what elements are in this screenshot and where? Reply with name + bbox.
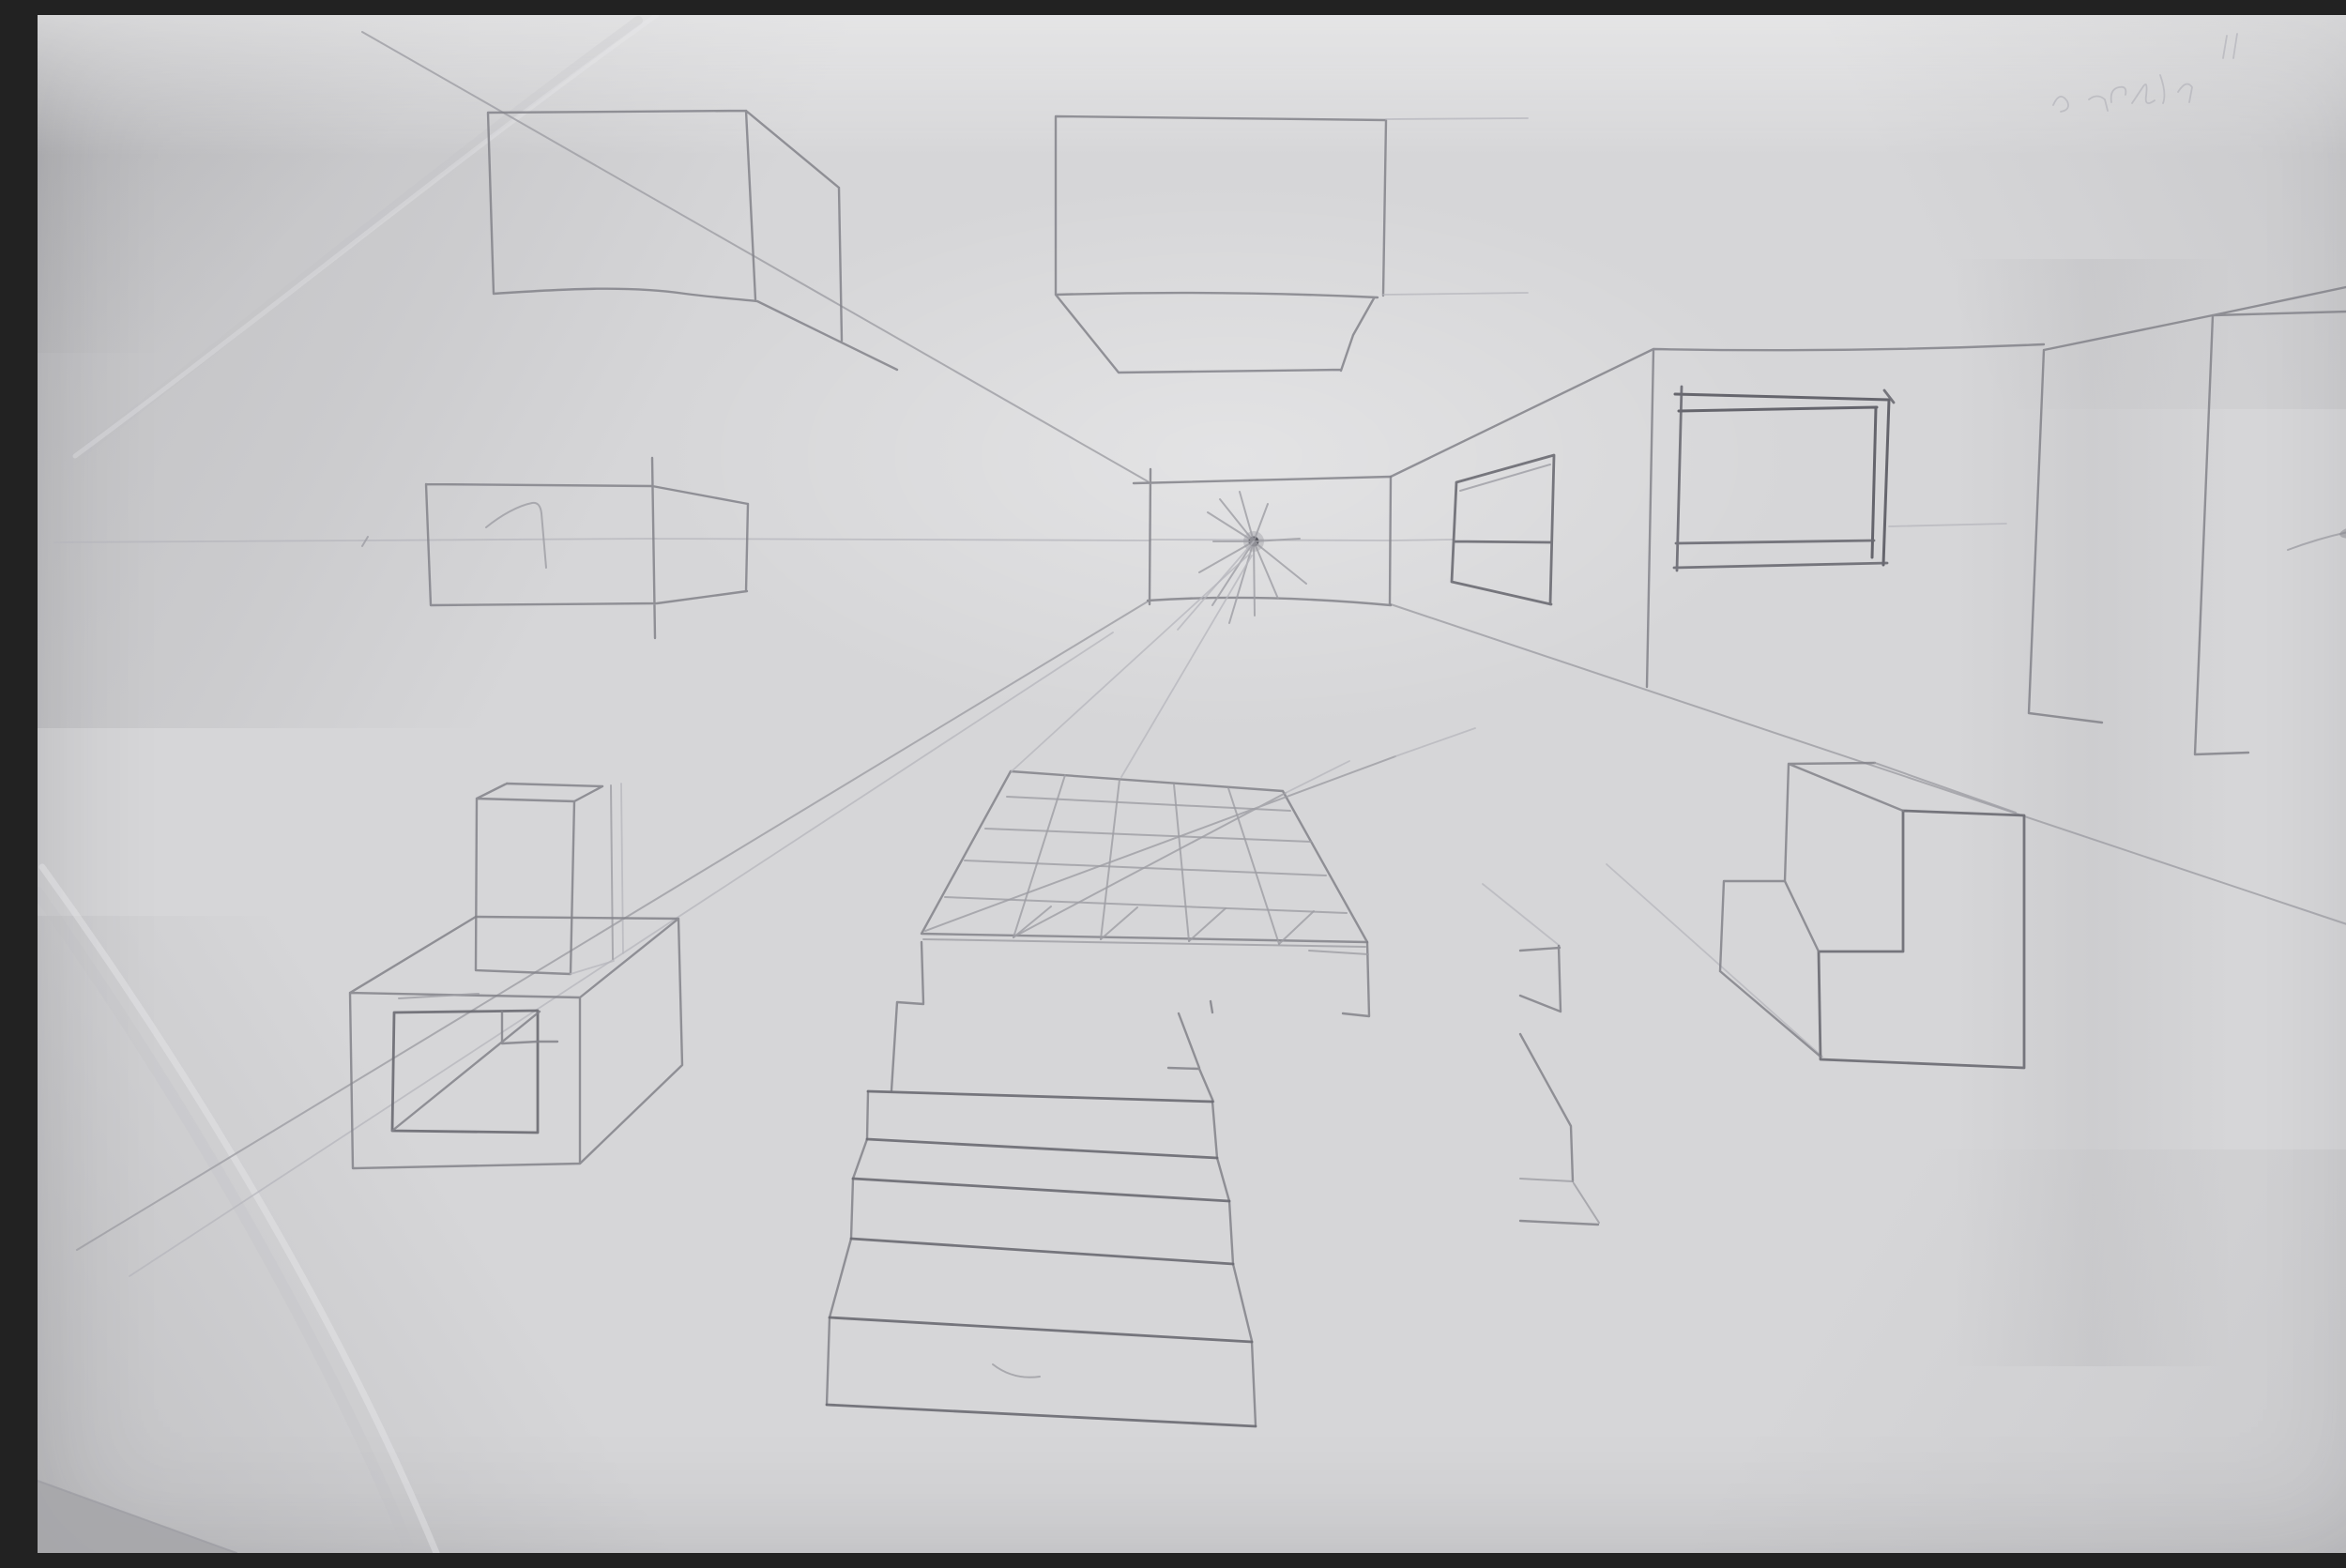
far-right-panel [2029, 280, 2346, 754]
graphite-smudge [2288, 524, 2346, 550]
l-shaped-block [1720, 763, 2024, 1068]
paper-edge-bottom-left [38, 1481, 236, 1553]
side-steps [1520, 946, 1599, 1225]
sketch-photo: Graphite one-point perspective study on … [38, 15, 2346, 1553]
construction-rays [77, 32, 2346, 1276]
paper-creases [38, 15, 657, 1553]
ceiling-box [1056, 116, 1528, 373]
ghost-inscription [2053, 34, 2237, 112]
tall-box-on-pedestal [476, 784, 623, 974]
flat-box-middle-left [426, 458, 748, 638]
floor-grid [922, 554, 1475, 947]
staircase [827, 942, 1369, 1426]
small-window [1452, 455, 1554, 604]
box-upper-left [488, 111, 897, 370]
large-window [1674, 387, 1894, 571]
pencil-perspective-sketch: Graphite one-point perspective study on … [38, 15, 2346, 1553]
hollow-pedestal [350, 917, 682, 1168]
